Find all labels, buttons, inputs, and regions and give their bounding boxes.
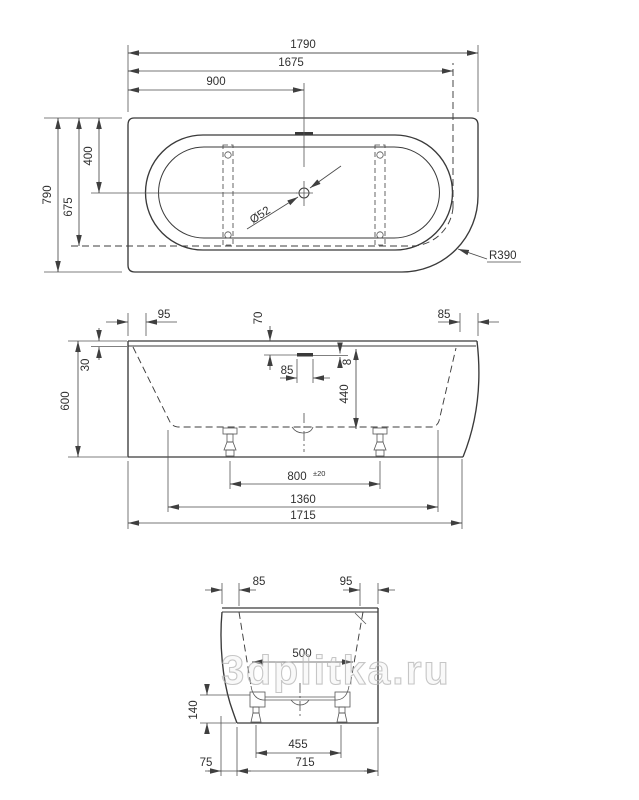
dim-top-rim-length: 1675 <box>278 57 304 69</box>
dim-side-skirt-offset: 75 <box>200 757 213 769</box>
dim-front-overflow-width: 85 <box>281 365 294 377</box>
dim-side-base-height: 140 <box>188 700 200 719</box>
front-foot-left <box>223 428 237 456</box>
dim-top-corner-radius: R390 <box>489 250 517 262</box>
basin-hidden-outline <box>133 347 456 427</box>
dim-front-rim-thickness: 30 <box>80 359 92 372</box>
support-channel-left <box>223 145 233 245</box>
dim-front-overflow-slot-height: 8 <box>342 359 354 365</box>
apron-right-curve <box>463 341 479 457</box>
front-foot-right <box>373 428 387 456</box>
tub-outline <box>128 118 478 272</box>
dim-top-drain-offset-y: 400 <box>83 146 95 165</box>
side-foot-left <box>251 707 261 722</box>
dim-side-rim-inset-left: 85 <box>253 576 266 588</box>
dim-front-base-span: 1360 <box>290 494 316 506</box>
dim-front-bottom-length: 1715 <box>290 510 316 522</box>
support-channel-right <box>375 145 385 245</box>
overflow-slot <box>297 353 313 357</box>
dim-front-total-height: 600 <box>60 391 72 410</box>
dim-top-drain-offset-x: 900 <box>206 76 225 88</box>
dim-side-feet-spacing: 455 <box>288 739 307 751</box>
dim-front-rim-inset-right: 85 <box>438 309 451 321</box>
drain-trap <box>292 427 313 433</box>
bathtub-technical-drawing: 1790 1675 900 790 675 400 Ø52 R390 <box>0 0 639 800</box>
dim-front-feet-spacing: 800 <box>287 471 306 483</box>
top-view: 1790 1675 900 790 675 400 Ø52 R390 <box>42 39 521 272</box>
rim-tick <box>355 613 366 624</box>
dim-top-drain-diameter: Ø52 <box>248 205 273 227</box>
front-view: 95 85 70 30 600 85 8 440 800 <box>60 309 499 529</box>
dim-top-total-length: 1790 <box>290 39 316 51</box>
dim-front-overflow-from-top: 70 <box>253 312 265 325</box>
dim-top-total-width: 790 <box>42 185 54 204</box>
side-bracket-left <box>250 692 265 707</box>
drawing-page: 1790 1675 900 790 675 400 Ø52 R390 <box>0 0 639 800</box>
dim-front-inner-depth: 440 <box>339 384 351 403</box>
drain <box>296 181 313 206</box>
watermark: 3dplitka.ru <box>221 647 450 693</box>
dim-front-feet-tolerance: ±20 <box>313 469 325 478</box>
dim-side-rim-inset-right: 95 <box>340 576 353 588</box>
side-foot-right <box>337 707 347 722</box>
hidden-corner-arc <box>412 208 453 246</box>
dim-top-rim-width: 675 <box>63 197 75 216</box>
dim-side-bottom-width: 715 <box>295 757 314 769</box>
apron-left-bottom <box>128 341 463 457</box>
side-bracket-right <box>335 692 350 707</box>
dim-front-rim-inset-left: 95 <box>158 309 171 321</box>
